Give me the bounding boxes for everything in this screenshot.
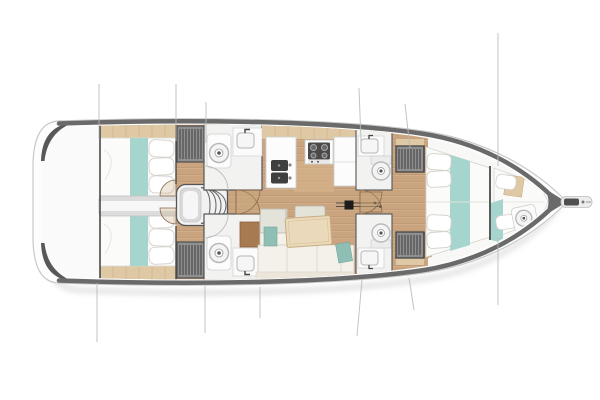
toilet-icon xyxy=(207,236,231,270)
bed-runner xyxy=(130,138,148,196)
galley-floor-patch xyxy=(294,162,334,192)
wardrobe-fwd-port xyxy=(396,146,424,172)
brown-side-table xyxy=(240,222,262,247)
yacht-floor-plan-page xyxy=(0,0,600,400)
head-mid-starboard xyxy=(356,214,392,278)
cabinet-trim xyxy=(100,124,176,138)
faucet-icon xyxy=(288,163,291,166)
head-mid-port xyxy=(356,126,392,190)
vanity-trim xyxy=(396,258,424,265)
teal-cushion xyxy=(336,242,353,263)
bow-sprit xyxy=(561,197,592,208)
faucet-icon xyxy=(288,176,291,179)
anchor-fitting xyxy=(564,199,579,206)
wardrobe-aft-port xyxy=(177,126,204,162)
sink-icon xyxy=(358,248,384,269)
head-aft-port xyxy=(204,124,262,190)
sink-icon xyxy=(233,128,262,156)
wardrobe-fwd-starboard xyxy=(396,232,424,258)
cabinet-trim xyxy=(100,266,176,280)
salon-table xyxy=(285,215,332,247)
bed-runner xyxy=(130,208,148,266)
toilet-icon xyxy=(207,134,231,168)
fridge-counter xyxy=(334,137,356,186)
toilet-icon xyxy=(371,156,391,180)
stove xyxy=(305,140,333,164)
teal-cushion xyxy=(264,227,277,246)
step-landing-highlight xyxy=(183,191,198,219)
bed-runner xyxy=(450,155,470,251)
sink-icon xyxy=(358,136,384,157)
yacht-floor-plan xyxy=(0,0,600,400)
wardrobe-aft-starboard xyxy=(177,242,204,278)
toilet-icon xyxy=(371,224,391,248)
